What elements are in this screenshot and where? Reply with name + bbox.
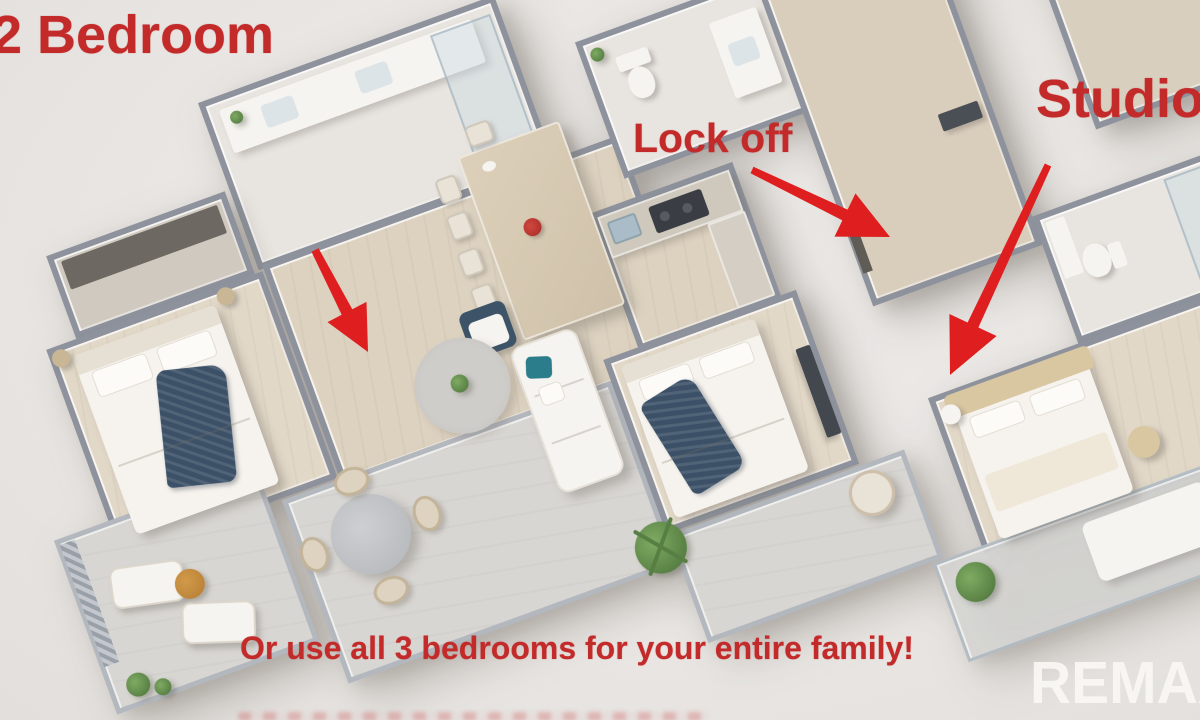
- two-bedroom-label: 2 Bedroom: [0, 8, 274, 62]
- cropped-text-sliver: [238, 712, 708, 720]
- studio-label: Studio: [1036, 72, 1200, 126]
- apartment-floorplan: [0, 0, 1200, 720]
- remax-watermark: REMAX: [1030, 649, 1200, 718]
- teal-pillow: [526, 356, 553, 379]
- lock-off-label: Lock off: [633, 118, 792, 159]
- bottom-caption: Or use all 3 bedrooms for your entire fa…: [240, 632, 914, 664]
- floorplan-image: 2 Bedroom Studio Lock off Or use all 3 b…: [0, 0, 1200, 720]
